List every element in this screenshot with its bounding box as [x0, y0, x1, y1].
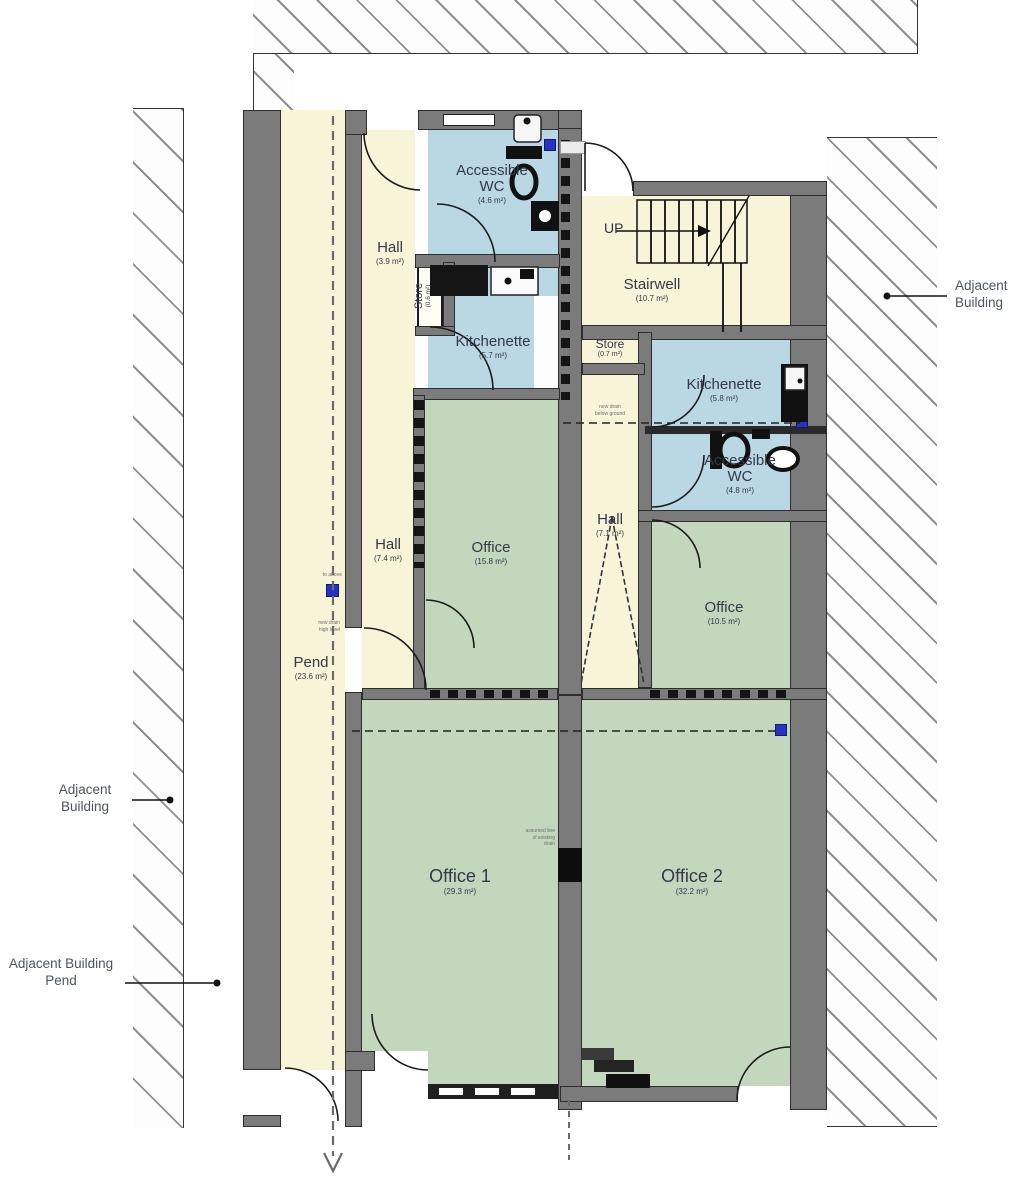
room-label-hall2: Hall (7.4 m²) — [350, 537, 426, 563]
office-a-name: Office — [421, 540, 561, 556]
office-b-glazing — [650, 690, 786, 698]
adjacent-building-hatch-top — [253, 0, 918, 54]
room-label-hall1: Hall (3.9 m²) — [352, 240, 428, 266]
wc1-area: (4.6 m²) — [442, 197, 542, 205]
office1-area: (29.3 m²) — [390, 888, 530, 896]
wall-office2-bottom — [560, 1086, 738, 1102]
stairwell-floor — [582, 196, 790, 325]
new-drain-below-note: new drain below ground — [582, 404, 638, 417]
wall-store2-bottom — [582, 363, 645, 375]
wall-store1-right — [443, 262, 455, 330]
spine-wall-dashes — [561, 140, 570, 400]
wall-wc2-bottom — [638, 510, 827, 522]
floor-plan: Accessible WC (4.6 m²) Hall (3.9 m²) Sto… — [0, 0, 1036, 1200]
hall1-name: Hall — [352, 240, 428, 256]
wc1-name: Accessible WC — [442, 163, 542, 195]
office1-name: Office 1 — [390, 867, 530, 886]
store2-area: (0.7 m²) — [578, 351, 642, 358]
store1-name: Store — [414, 266, 426, 326]
kitchenette2-area: (5.8 m²) — [654, 395, 794, 403]
adjacent-building-hatch-left — [133, 108, 184, 1128]
assumed-drain-note: assumed line of existing drain — [500, 828, 555, 848]
adjacent-building-hatch-right — [827, 137, 937, 1127]
wall-stairwell-top — [633, 181, 827, 196]
wall-kitchenette1-bottom — [413, 388, 560, 400]
external-gully — [560, 141, 586, 154]
wc2-name: Accessible WC — [690, 453, 790, 485]
wc1-window — [443, 114, 495, 126]
up-label: UP — [604, 220, 634, 238]
wall-office1-bottom-left — [345, 1051, 375, 1071]
kitchenette2-name: Kitchenette — [654, 377, 794, 393]
svp-marker-top — [544, 139, 556, 151]
room-label-office-a: Office (15.8 m²) — [421, 540, 561, 566]
room-label-wc1: Accessible WC (4.6 m²) — [442, 163, 542, 205]
pend-name: Pend — [271, 655, 351, 671]
wall-left-stub — [243, 1115, 281, 1127]
office-b-area: (10.5 m²) — [654, 618, 794, 626]
room-label-office-b: Office (10.5 m²) — [654, 600, 794, 626]
wall-spine-lower — [558, 695, 582, 1110]
room-label-store1: Store (0.6 m²) — [414, 266, 442, 326]
stairwell-area: (10.7 m²) — [582, 295, 722, 303]
wc2-area: (4.8 m²) — [690, 487, 790, 495]
entrance-step-3 — [606, 1074, 650, 1088]
wall-spine-cap — [558, 110, 582, 130]
adjacent-building-left-label: Adjacent Building — [40, 782, 130, 816]
adjacent-building-right-label: Adjacent Building — [955, 278, 1035, 312]
svp-marker-pend — [326, 584, 339, 597]
to-above-note: to above — [292, 572, 342, 579]
wall-right-outer — [790, 181, 827, 1110]
wall-top-left — [345, 110, 367, 135]
hall3-area: (7.1 m²) — [572, 530, 648, 538]
office-a-glazing — [430, 690, 556, 698]
office-b-name: Office — [654, 600, 794, 616]
office1-window-2 — [474, 1087, 500, 1096]
store1-area: (0.6 m²) — [426, 266, 433, 326]
room-label-pend: Pend (23.6 m²) — [271, 655, 351, 681]
new-drain-high-note: new drain high level — [288, 620, 340, 633]
chimney-block — [558, 848, 582, 882]
wall-left-outer — [243, 110, 281, 1070]
hall2-area: (7.4 m²) — [350, 555, 426, 563]
room-label-kitchenette2: Kitchenette (5.8 m²) — [654, 377, 794, 403]
office1-window-1 — [438, 1087, 464, 1096]
room-label-store2: Store (0.7 m²) — [578, 338, 642, 358]
room-label-office2: Office 2 (32.2 m²) — [622, 867, 762, 896]
hall3-name: Hall — [572, 512, 648, 528]
room-label-hall3: Hall (7.1 m²) — [572, 512, 648, 538]
office2-name: Office 2 — [622, 867, 762, 886]
svp-marker-kitchenette2 — [796, 416, 808, 428]
office-a-area: (15.8 m²) — [421, 558, 561, 566]
hall-corridor-floor — [362, 130, 415, 695]
room-label-wc2: Accessible WC (4.8 m²) — [690, 453, 790, 495]
hall1-area: (3.9 m²) — [352, 258, 428, 266]
entrance-step-2 — [594, 1060, 634, 1072]
kitchenette1-name: Kitchenette — [423, 334, 563, 350]
room-label-office1: Office 1 (29.3 m²) — [390, 867, 530, 896]
hall2-name: Hall — [350, 537, 426, 553]
adjacent-building-pend-label: Adjacent Building Pend — [0, 956, 122, 990]
kitchenette1-area: (5.7 m²) — [423, 352, 563, 360]
office2-area: (32.2 m²) — [622, 888, 762, 896]
store2-name: Store — [578, 338, 642, 351]
pend-area: (23.6 m²) — [271, 673, 351, 681]
entrance-step-1 — [582, 1048, 614, 1060]
room-label-stairwell: Stairwell (10.7 m²) — [582, 277, 722, 303]
office1-window-3 — [510, 1087, 536, 1096]
stairwell-name: Stairwell — [582, 277, 722, 293]
room-label-kitchenette1: Kitchenette (5.7 m²) — [423, 334, 563, 360]
svp-marker-office2 — [775, 724, 787, 736]
